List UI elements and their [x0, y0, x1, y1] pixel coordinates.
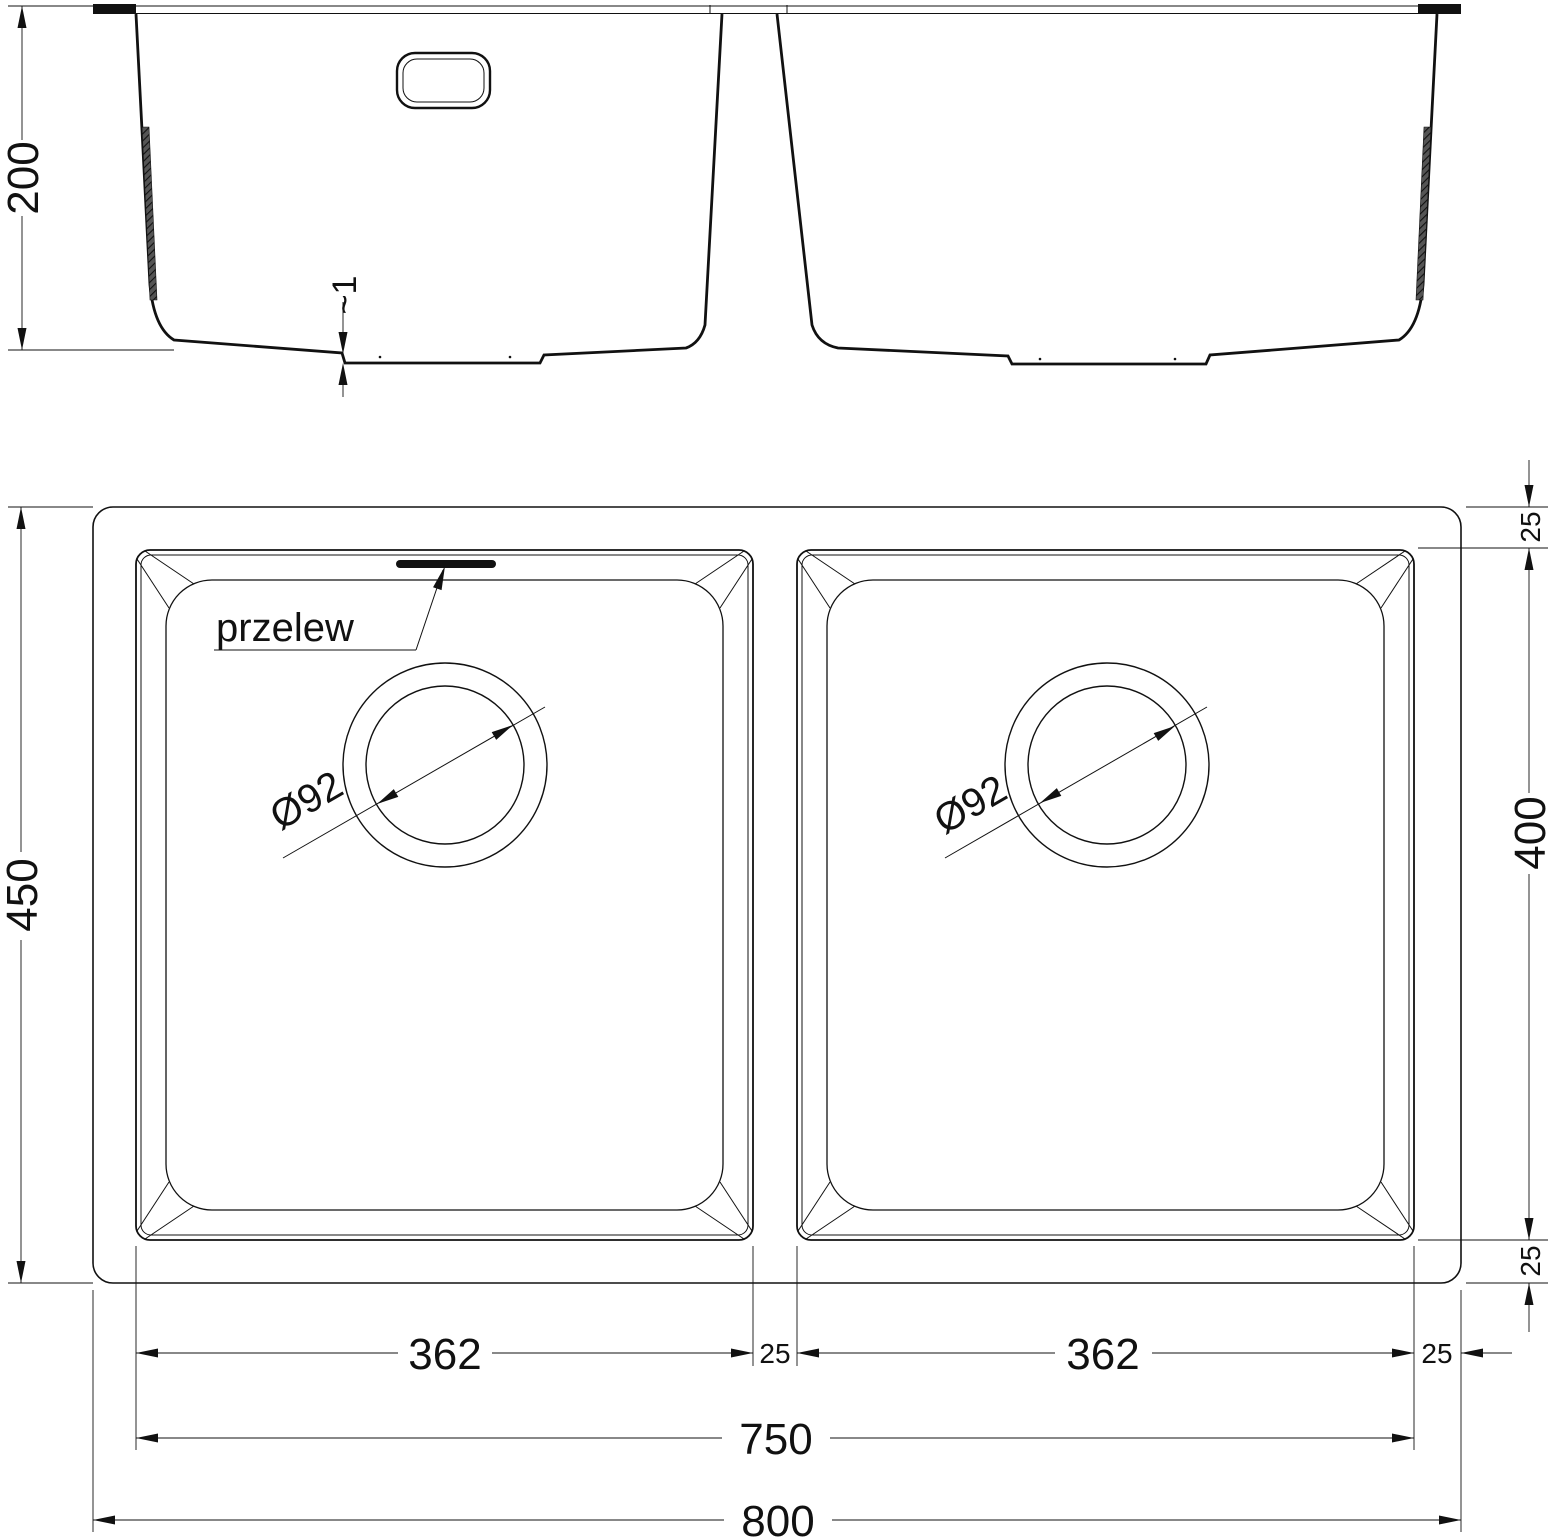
left-bowl-rim-mid: [141, 555, 748, 1235]
sink-dimension-drawing: 200 ~1: [0, 0, 1556, 1539]
dim-row-800: 800: [93, 1497, 1461, 1539]
overflow-section-inner: [403, 59, 484, 102]
dim-height-bowl-label: 400: [1506, 796, 1555, 869]
drain-mark-dot: [509, 356, 512, 359]
dim-rim-top-label: 25: [1515, 511, 1546, 542]
right-bowl-inner: [827, 580, 1384, 1210]
dim-rim-right-label: 25: [1421, 1338, 1452, 1369]
dim-span-bowls-label: 750: [739, 1415, 812, 1464]
section-left-rim-cap: [93, 4, 136, 14]
dim-rim-bottom-label: 25: [1515, 1245, 1546, 1276]
right-bowl-plan: Ø92: [797, 550, 1414, 1240]
left-bowl-plan: Ø92: [136, 550, 753, 1240]
drain-mark-dot: [1039, 358, 1042, 361]
left-bowl-rim-outer: [136, 550, 753, 1240]
overflow-label: przelew: [216, 606, 354, 650]
overflow-slot: [396, 560, 496, 568]
dim-width-total-label: 800: [741, 1497, 814, 1539]
dim-bowl-right-width-label: 362: [1066, 1330, 1139, 1379]
drain-mark-dot: [1174, 358, 1177, 361]
right-bowl-section-profile: [777, 14, 1437, 364]
right-bowl-corner-chamfers: [798, 551, 1413, 1239]
overflow-callout: przelew: [214, 565, 449, 650]
dim-gap-center-label: 25: [759, 1338, 790, 1369]
dim-right-column: 25 400 25: [1418, 460, 1555, 1332]
dim-row-750: 750: [136, 1415, 1414, 1464]
right-drain-diameter-label: Ø92: [927, 767, 1014, 843]
left-bowl-inner: [166, 580, 723, 1210]
drain-mark-dot: [379, 356, 382, 359]
dim-height-450: 450: [0, 507, 93, 1283]
overflow-section-outer: [397, 53, 490, 108]
technical-drawing-sheet: 200 ~1: [0, 0, 1556, 1539]
section-right-rim-cap: [1418, 4, 1461, 14]
dim-floor-offset-label: ~1: [326, 276, 364, 315]
dim-height-total-label: 450: [0, 858, 47, 931]
dim-bowl-left-width-label: 362: [408, 1330, 481, 1379]
left-wall-hatch-strip: [142, 127, 157, 300]
right-wall-hatch-strip: [1416, 127, 1431, 300]
right-bowl-rim-outer: [797, 550, 1414, 1240]
dim-bottom-rows: 362 25 362 25 750: [93, 1246, 1512, 1539]
dim-floor-offset: ~1: [326, 276, 364, 397]
dim-row-362: 362 25 362 25: [136, 1330, 1512, 1379]
left-bowl-section-profile: [136, 14, 722, 363]
left-bowl-corner-chamfers: [137, 551, 752, 1239]
section-view: 200 ~1: [0, 4, 1461, 397]
plan-view: Ø92 Ø92 przelew: [0, 460, 1555, 1539]
right-bowl-rim-mid: [802, 555, 1409, 1235]
dim-depth-label: 200: [0, 141, 48, 214]
